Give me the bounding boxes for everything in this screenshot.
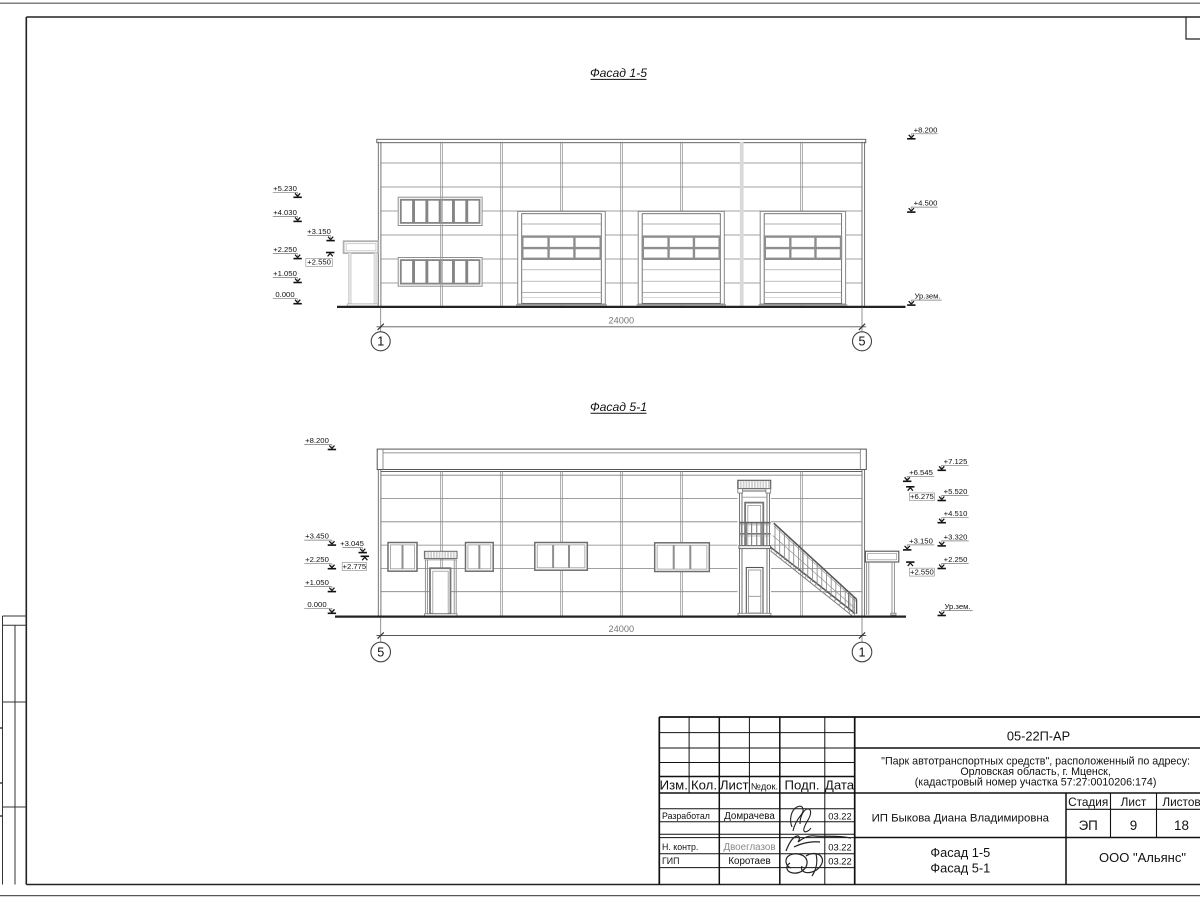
svg-text:+5.230: +5.230	[273, 184, 297, 193]
svg-text:05-22П-АР: 05-22П-АР	[1007, 729, 1070, 744]
svg-text:+3.450: +3.450	[305, 532, 329, 541]
svg-text:+3.150: +3.150	[307, 227, 331, 236]
svg-text:+2.775: +2.775	[342, 562, 366, 571]
svg-text:0.000: 0.000	[307, 600, 326, 609]
svg-text:+1.050: +1.050	[273, 269, 297, 278]
svg-text:0.000: 0.000	[275, 290, 294, 299]
svg-text:Лист: Лист	[1121, 795, 1147, 809]
svg-text:(кадастровый номер участка 57:: (кадастровый номер участка 57:27:0010206…	[915, 777, 1157, 789]
svg-text:1: 1	[377, 335, 384, 349]
svg-text:+4.510: +4.510	[944, 509, 968, 518]
svg-text:+2.550: +2.550	[910, 567, 934, 576]
svg-text:9: 9	[1130, 818, 1137, 833]
svg-text:ООО "Альянс": ООО "Альянс"	[1099, 850, 1186, 865]
svg-text:+8.200: +8.200	[914, 125, 938, 134]
svg-text:№док.: №док.	[751, 781, 778, 791]
svg-text:Н. контр.: Н. контр.	[662, 842, 698, 852]
svg-text:1: 1	[858, 645, 865, 659]
svg-text:+7.125: +7.125	[944, 457, 968, 466]
svg-text:Фасад 5-1: Фасад 5-1	[590, 400, 647, 414]
svg-text:Фасад 1-5: Фасад 1-5	[930, 845, 990, 860]
svg-text:ИП Быкова Диана Владимировна: ИП Быкова Диана Владимировна	[872, 813, 1050, 825]
svg-text:Дата: Дата	[825, 778, 855, 793]
svg-text:+6.545: +6.545	[909, 468, 933, 477]
svg-text:ГИП: ГИП	[662, 856, 679, 866]
svg-text:+3.150: +3.150	[909, 536, 933, 545]
svg-text:Домрачева: Домрачева	[724, 811, 775, 822]
svg-text:+2.250: +2.250	[944, 555, 968, 564]
svg-text:+4.030: +4.030	[273, 208, 297, 217]
svg-text:Подп.: Подп.	[784, 778, 819, 793]
svg-text:Двоеглазов: Двоеглазов	[723, 842, 775, 853]
svg-text:+2.550: +2.550	[307, 258, 331, 267]
svg-text:Разработал: Разработал	[662, 811, 710, 821]
svg-text:+3.045: +3.045	[340, 539, 364, 548]
svg-text:Ур.зем.: Ур.зем.	[944, 602, 970, 611]
svg-text:5: 5	[377, 645, 384, 659]
svg-text:Ур.зем.: Ур.зем.	[914, 292, 940, 301]
svg-text:Коротаев: Коротаев	[728, 856, 770, 867]
svg-text:Фасад 5-1: Фасад 5-1	[930, 861, 990, 876]
svg-text:Стадия: Стадия	[1068, 795, 1108, 809]
svg-text:+3.320: +3.320	[944, 532, 968, 541]
svg-text:ЭП: ЭП	[1079, 818, 1098, 833]
svg-text:+4.500: +4.500	[914, 199, 938, 208]
svg-text:03.22: 03.22	[828, 856, 851, 867]
svg-text:+2.250: +2.250	[305, 555, 329, 564]
svg-text:24000: 24000	[609, 315, 635, 325]
svg-text:+2.250: +2.250	[273, 245, 297, 254]
svg-text:+8.200: +8.200	[305, 436, 329, 445]
svg-text:03.22: 03.22	[828, 841, 851, 852]
svg-text:Фасад 1-5: Фасад 1-5	[590, 66, 647, 80]
svg-text:5: 5	[858, 335, 865, 349]
svg-text:+5.520: +5.520	[944, 487, 968, 496]
svg-text:03.22: 03.22	[828, 810, 851, 821]
svg-text:Изм.: Изм.	[660, 778, 688, 793]
svg-text:Лист: Лист	[720, 778, 749, 793]
svg-text:+6.275: +6.275	[910, 492, 934, 501]
svg-text:18: 18	[1174, 818, 1189, 833]
svg-text:24000: 24000	[609, 624, 635, 634]
svg-text:Листов: Листов	[1162, 795, 1200, 809]
svg-text:+1.050: +1.050	[305, 578, 329, 587]
svg-text:Кол.: Кол.	[691, 778, 717, 793]
